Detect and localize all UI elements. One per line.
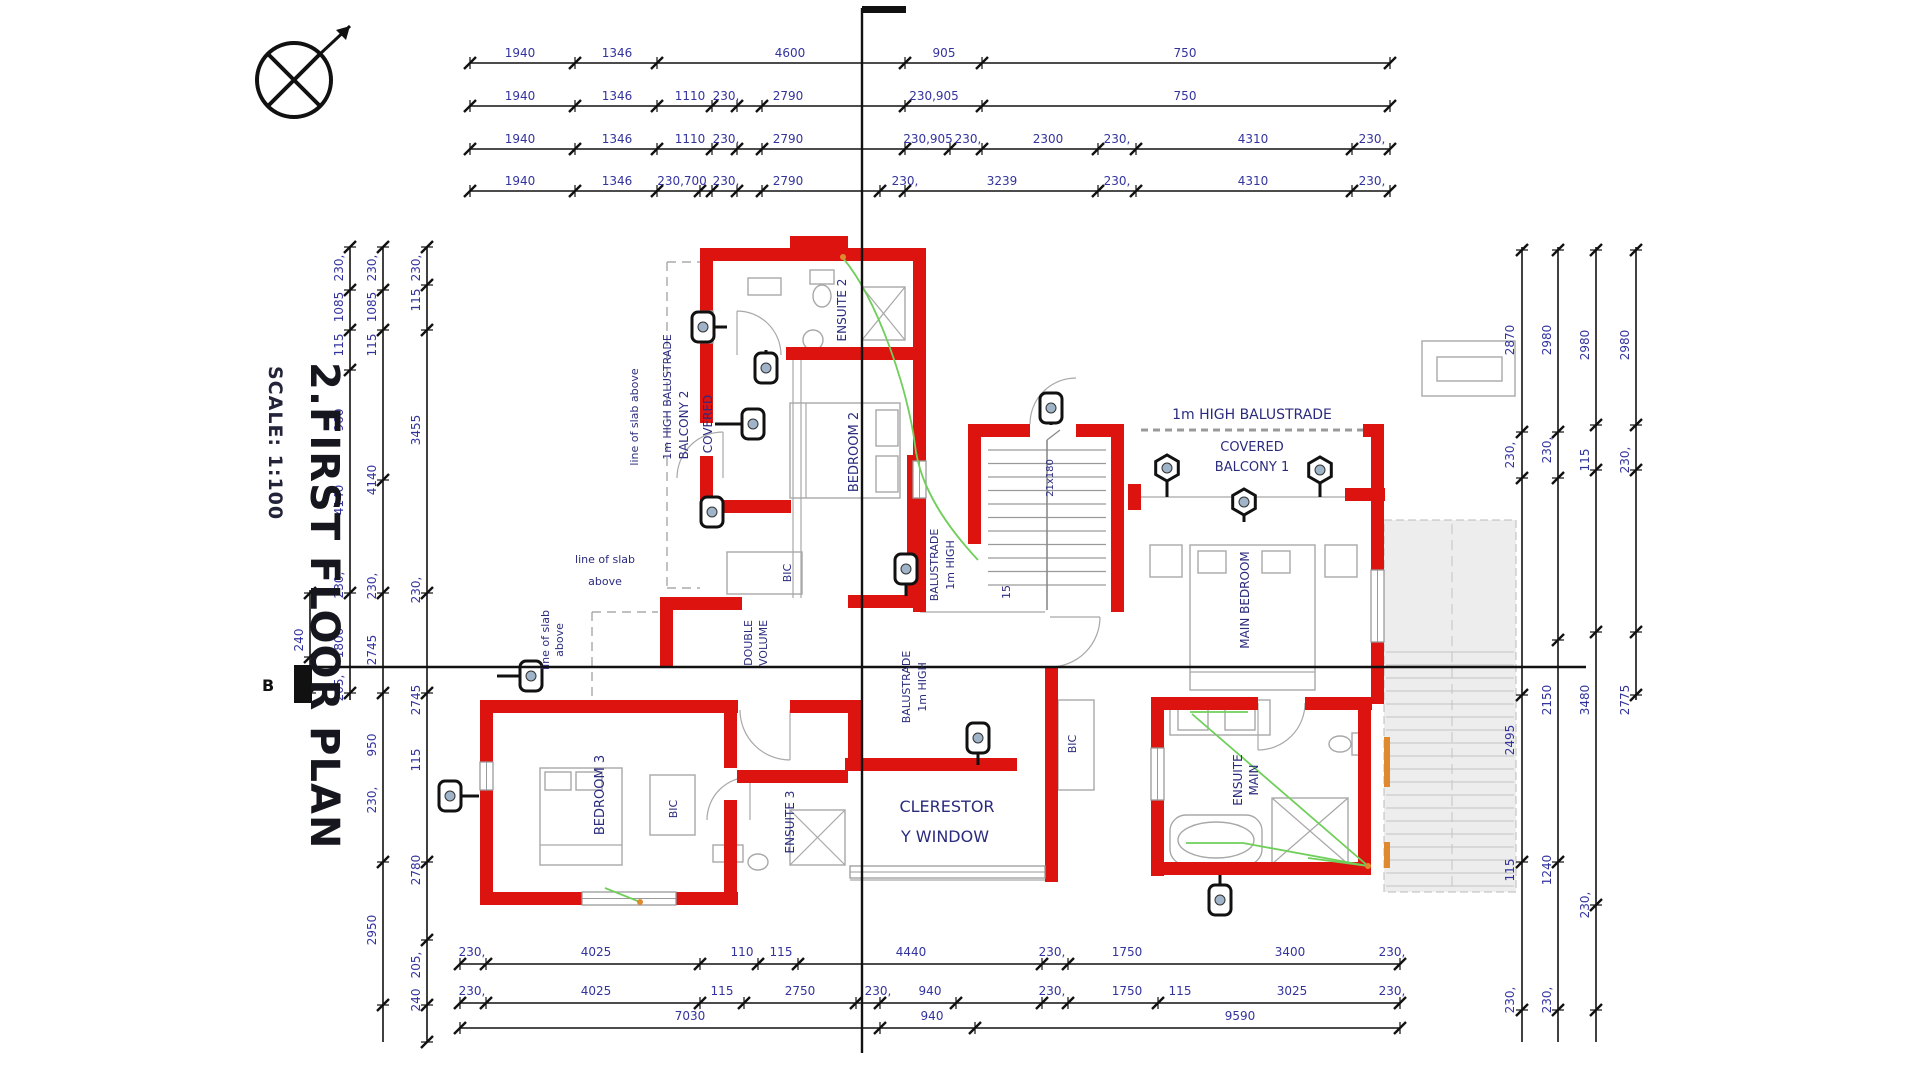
chimney-outer — [1422, 341, 1515, 396]
light-bulb-dot — [748, 419, 758, 429]
room-label: ENSUITE 3 — [783, 791, 797, 854]
dim-right: 230, — [1503, 442, 1517, 469]
dim-top: 230,905 — [909, 89, 959, 103]
floor-plan-sheet: 194013464600905750194013461110230,279023… — [0, 0, 1920, 1079]
light-bulb-dot — [1046, 403, 1056, 413]
dim-right: 115 — [1578, 449, 1592, 472]
dim-left: 2745 — [409, 685, 423, 716]
dim-left: 4140 — [365, 465, 379, 496]
dim-bottom: 940 — [921, 1009, 944, 1023]
dim-left: 2745 — [365, 635, 379, 666]
dim-top: 230, — [1104, 174, 1131, 188]
dim-left: 240 — [409, 989, 423, 1012]
annotation: 1m HIGH — [944, 540, 957, 590]
dim-top: 3239 — [987, 174, 1018, 188]
section-marker-letter: B — [262, 676, 274, 695]
vanity — [748, 278, 781, 295]
room-label: BALCONY 2 — [677, 391, 691, 460]
annotation: line of slab above — [628, 368, 641, 465]
room-label: MAIN — [1247, 764, 1261, 795]
deck-outline — [1384, 520, 1516, 892]
annotation: Y WINDOW — [900, 827, 989, 846]
annotation: VOLUME — [757, 620, 770, 666]
dim-top: 1346 — [602, 174, 633, 188]
chimney-inner — [1437, 357, 1502, 381]
room-label: ENSUITE — [1231, 754, 1245, 805]
wall-segment — [724, 800, 737, 892]
section-flag-top — [862, 6, 906, 13]
dim-right: 1240 — [1540, 855, 1554, 886]
dim-top: 2790 — [773, 174, 804, 188]
dim-top: 1940 — [505, 89, 536, 103]
annotation: 1m HIGH BALUSTRADE — [661, 334, 674, 460]
dim-top: 230, — [892, 174, 919, 188]
annotation: above — [553, 623, 566, 657]
dim-right: 230, — [1540, 987, 1554, 1014]
side-table — [1150, 545, 1182, 577]
wall-segment — [1128, 484, 1141, 510]
room-label: BEDROOM 2 — [847, 412, 862, 492]
light-bulb-dot — [1315, 465, 1325, 475]
dim-left: 1085 — [332, 292, 346, 323]
floor-plan-drawing: 194013464600905750194013461110230,279023… — [0, 0, 1920, 1079]
dim-left: 230, — [409, 577, 423, 604]
dim-right: 3480 — [1578, 685, 1592, 716]
wall-segment — [786, 347, 926, 360]
dim-right: 2980 — [1618, 330, 1632, 361]
side-table — [1325, 545, 1357, 577]
dim-right: 115 — [1503, 859, 1517, 882]
stair-note: 21x180 — [1045, 459, 1056, 497]
dim-right: 2150 — [1540, 685, 1554, 716]
deck-threshold-marker — [1384, 842, 1390, 868]
dim-left: 230, — [365, 573, 379, 600]
dim-bottom: 230, — [459, 945, 486, 959]
room-label: COVERED — [1220, 440, 1283, 455]
room-label: MAIN BEDROOM — [1238, 551, 1252, 649]
dim-right: 2980 — [1578, 330, 1592, 361]
wall-segment — [480, 700, 493, 762]
dim-top: 230, — [955, 132, 982, 146]
page-title: 2.FIRST FLOOR PLAN — [301, 362, 347, 849]
dim-top: 1110 — [675, 132, 706, 146]
annotation: above — [588, 575, 622, 588]
dim-left: 115 — [409, 749, 423, 772]
timber-deck — [1384, 520, 1516, 892]
wall-segment — [713, 500, 791, 513]
wall-segment — [1111, 424, 1124, 612]
pillow — [1198, 551, 1226, 573]
light-bulb-dot — [1162, 463, 1172, 473]
pillow — [876, 456, 898, 492]
wall-segment — [1151, 862, 1371, 875]
door-swing-arc — [737, 311, 781, 355]
pillow — [1262, 551, 1290, 573]
dim-left: 115 — [332, 334, 346, 357]
toilet-bowl — [748, 854, 768, 870]
annotation: DOUBLE — [742, 620, 755, 666]
dim-left: 2950 — [365, 915, 379, 946]
dim-top: 1346 — [602, 89, 633, 103]
wall-segment — [790, 700, 861, 713]
dim-top: 2300 — [1033, 132, 1064, 146]
dim-bottom: 115 — [1169, 984, 1192, 998]
slab-dashed-lines — [592, 262, 700, 700]
dim-bottom: 940 — [919, 984, 942, 998]
dim-top: 4310 — [1238, 132, 1269, 146]
dim-top: 4600 — [775, 46, 806, 60]
dim-right: 230, — [1578, 892, 1592, 919]
wall-segment — [480, 700, 738, 713]
light-bulb-dot — [973, 733, 983, 743]
wall-segment — [700, 248, 926, 261]
light-bulb-dot — [761, 363, 771, 373]
bath-inner — [1178, 822, 1254, 858]
dim-bottom: 115 — [711, 984, 734, 998]
dim-left: 230, — [365, 255, 379, 282]
dim-top: 230,905 — [903, 132, 953, 146]
staircase — [988, 430, 1106, 610]
dim-left: 1085 — [365, 292, 379, 323]
dim-bottom: 4440 — [896, 945, 927, 959]
dim-top: 1940 — [505, 174, 536, 188]
wall-segment — [848, 595, 922, 608]
bed — [1190, 545, 1315, 690]
dim-left: 950 — [365, 734, 379, 757]
dim-left: 230, — [365, 787, 379, 814]
dim-bottom: 4025 — [581, 984, 612, 998]
light-bulb-dot — [901, 564, 911, 574]
room-label: COVERED — [701, 395, 715, 454]
dim-right: 230, — [1618, 447, 1632, 474]
dim-left: 205, — [409, 952, 423, 979]
annotation: line of slab — [575, 553, 635, 566]
pillow — [545, 772, 571, 790]
bed — [540, 768, 622, 865]
wiring-node — [840, 254, 846, 260]
dim-right: 2980 — [1540, 325, 1554, 356]
room-label: BIC — [781, 563, 794, 582]
wiring-node — [637, 899, 643, 905]
annotation: BALUSTRADE — [900, 651, 913, 724]
dim-top: 4310 — [1238, 174, 1269, 188]
dim-bottom: 9590 — [1225, 1009, 1256, 1023]
stair-note: 15 — [1000, 585, 1013, 599]
dim-top: 1110 — [675, 89, 706, 103]
wall-segment — [676, 892, 738, 905]
dim-left: 3455 — [409, 415, 423, 446]
dim-bottom: 230, — [865, 984, 892, 998]
wall-segment — [724, 713, 737, 768]
dim-top: 1940 — [505, 46, 536, 60]
wall-segment — [1371, 642, 1384, 704]
dim-bottom: 3025 — [1277, 984, 1308, 998]
wall-segment — [1151, 697, 1258, 710]
dim-top: 905 — [933, 46, 956, 60]
dim-top: 230,700 — [657, 174, 707, 188]
door-swing-arc — [740, 710, 790, 760]
pillow — [876, 410, 898, 446]
scale-label: SCALE: 1:100 — [264, 366, 286, 520]
toilet-bowl — [813, 285, 831, 307]
light-bulb-dot — [526, 671, 536, 681]
wall-segment — [790, 236, 848, 249]
dim-top: 230, — [1104, 132, 1131, 146]
dim-left: 2780 — [409, 855, 423, 886]
wall-segment — [480, 790, 493, 905]
dim-top: 230, — [713, 174, 740, 188]
dim-bottom: 230, — [1039, 945, 1066, 959]
dim-bottom: 110 — [731, 945, 754, 959]
dim-left: 115 — [409, 289, 423, 312]
wall-segment — [1371, 488, 1384, 570]
annotation: 1m HIGH — [916, 662, 929, 712]
toilet — [810, 270, 834, 284]
dim-bottom: 1750 — [1112, 984, 1143, 998]
dim-bottom: 230, — [1039, 984, 1066, 998]
wall-segment — [1305, 697, 1372, 710]
light-bulb-dot — [1215, 895, 1225, 905]
room-label: BIC — [1066, 734, 1079, 753]
dim-bottom: 115 — [770, 945, 793, 959]
stair-arrow — [1047, 430, 1060, 440]
dim-top: 2790 — [773, 89, 804, 103]
dim-top: 230, — [1359, 174, 1386, 188]
light-bulb-dot — [445, 791, 455, 801]
dim-left: 230, — [332, 255, 346, 282]
dim-top: 1346 — [602, 132, 633, 146]
dim-top: 750 — [1174, 46, 1197, 60]
wall-segment — [660, 597, 673, 667]
dim-bottom: 230, — [1379, 945, 1406, 959]
wall-segment — [700, 261, 713, 311]
dim-bottom: 2750 — [785, 984, 816, 998]
light-bulb-dot — [1239, 497, 1249, 507]
light-bulb-dot — [698, 322, 708, 332]
annotation: line of slab — [539, 610, 552, 670]
wall-segment — [1045, 667, 1058, 882]
dim-right: 2775 — [1618, 685, 1632, 716]
room-label: BALCONY 1 — [1215, 460, 1289, 475]
dim-bottom: 7030 — [675, 1009, 706, 1023]
door-swing-arc — [1258, 703, 1305, 750]
room-label: ENSUITE 2 — [835, 279, 849, 342]
dim-bottom: 230, — [1379, 984, 1406, 998]
light-bulb-dot — [707, 507, 717, 517]
dim-top: 750 — [1174, 89, 1197, 103]
dim-right: 230, — [1540, 437, 1554, 464]
dim-top: 1346 — [602, 46, 633, 60]
dim-top: 230, — [713, 132, 740, 146]
dim-top: 230, — [713, 89, 740, 103]
north-compass-icon — [257, 26, 350, 117]
wall-segment — [845, 758, 1017, 771]
dim-right: 230, — [1503, 987, 1517, 1014]
wall-segment — [480, 892, 582, 905]
dim-top: 2790 — [773, 132, 804, 146]
dim-right: 2870 — [1503, 325, 1517, 356]
wall-segment — [1151, 710, 1164, 748]
wall-segment — [1358, 710, 1371, 865]
wall-segment — [968, 424, 981, 544]
room-label: BEDROOM 3 — [593, 755, 608, 835]
annotation: 1m HIGH BALUSTRADE — [1172, 407, 1332, 423]
dim-bottom: 230, — [459, 984, 486, 998]
dim-left: 115 — [365, 334, 379, 357]
dim-bottom: 3400 — [1275, 945, 1306, 959]
dim-left: 230, — [409, 255, 423, 282]
room-label: BIC — [667, 799, 680, 818]
door-swing-arc — [1050, 617, 1100, 667]
annotation: BALUSTRADE — [928, 529, 941, 602]
annotation: CLERESTOR — [899, 797, 994, 816]
toilet-bowl — [1329, 736, 1351, 752]
dim-right: 2495 — [1503, 725, 1517, 756]
dim-bottom: 4025 — [581, 945, 612, 959]
dim-top: 230, — [1359, 132, 1386, 146]
dim-bottom: 1750 — [1112, 945, 1143, 959]
dim-top: 1940 — [505, 132, 536, 146]
wiring-node — [1365, 863, 1371, 869]
wall-segment — [737, 770, 848, 783]
deck-threshold-marker — [1384, 737, 1390, 787]
wall-segment — [913, 261, 926, 461]
